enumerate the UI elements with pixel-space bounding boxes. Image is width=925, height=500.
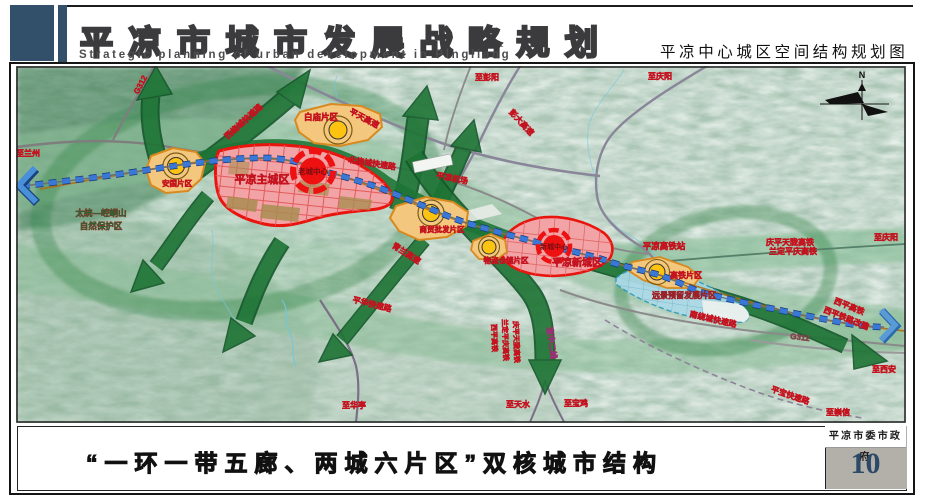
svg-text:平凉主城区: 平凉主城区 xyxy=(235,172,290,186)
svg-text:高铁片区: 高铁片区 xyxy=(670,270,702,280)
svg-text:自然保护区: 自然保护区 xyxy=(80,221,123,231)
svg-text:安国片区: 安国片区 xyxy=(162,178,192,188)
svg-text:庆平天陇高铁: 庆平天陇高铁 xyxy=(765,237,814,247)
svg-text:至彭阳: 至彭阳 xyxy=(475,72,499,82)
svg-text:至西安: 至西安 xyxy=(872,364,896,374)
svg-text:N: N xyxy=(859,70,866,80)
svg-text:商贸批发片区: 商贸批发片区 xyxy=(420,224,465,234)
svg-text:至庆阳: 至庆阳 xyxy=(648,71,672,81)
svg-text:至崇信: 至崇信 xyxy=(826,407,850,417)
svg-text:新城中心: 新城中心 xyxy=(540,242,568,251)
svg-text:至天水: 至天水 xyxy=(506,399,531,409)
svg-text:老城中心: 老城中心 xyxy=(297,166,328,176)
svg-text:白庙片区: 白庙片区 xyxy=(304,112,339,122)
svg-text:平凉新城区: 平凉新城区 xyxy=(552,256,602,269)
svg-text:兰定平庆高铁: 兰定平庆高铁 xyxy=(769,246,817,256)
svg-text:物流仓储片区: 物流仓储片区 xyxy=(484,255,529,265)
svg-text:至宝鸡: 至宝鸡 xyxy=(564,398,588,408)
svg-text:至华亭: 至华亭 xyxy=(342,400,366,410)
svg-text:平凉高铁站: 平凉高铁站 xyxy=(643,241,686,251)
svg-text:至庆阳: 至庆阳 xyxy=(874,232,898,242)
svg-text:远景预留发展片区: 远景预留发展片区 xyxy=(652,290,716,300)
svg-text:至兰州: 至兰州 xyxy=(16,148,40,158)
svg-text:太统—崆峒山: 太统—崆峒山 xyxy=(74,208,126,218)
